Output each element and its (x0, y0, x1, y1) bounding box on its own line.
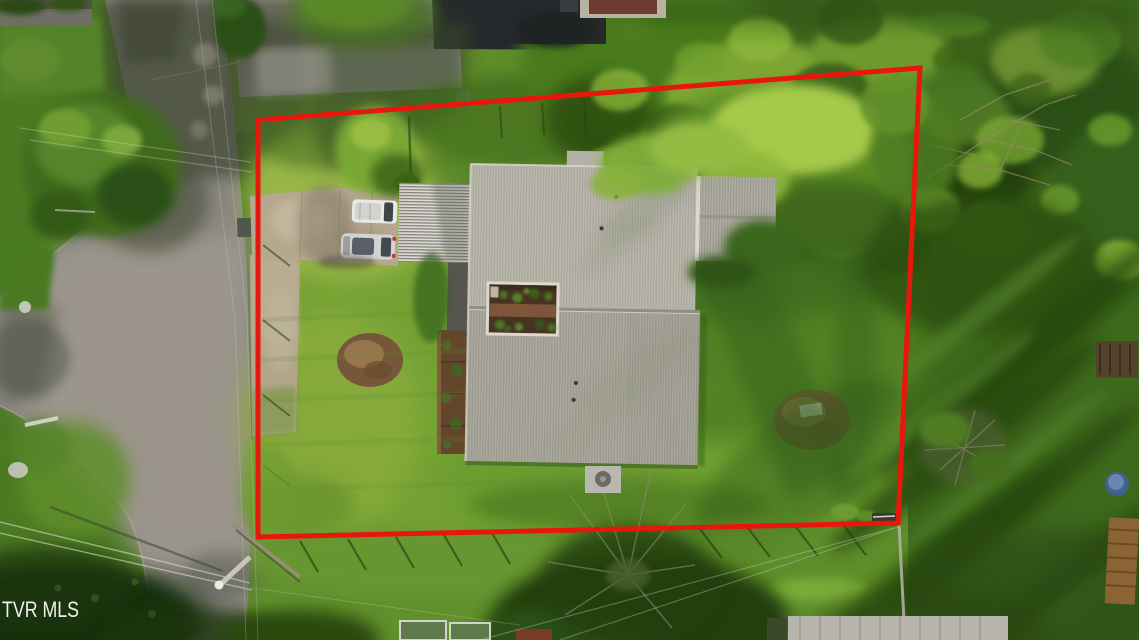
svg-text:TVR MLS: TVR MLS (2, 597, 79, 622)
